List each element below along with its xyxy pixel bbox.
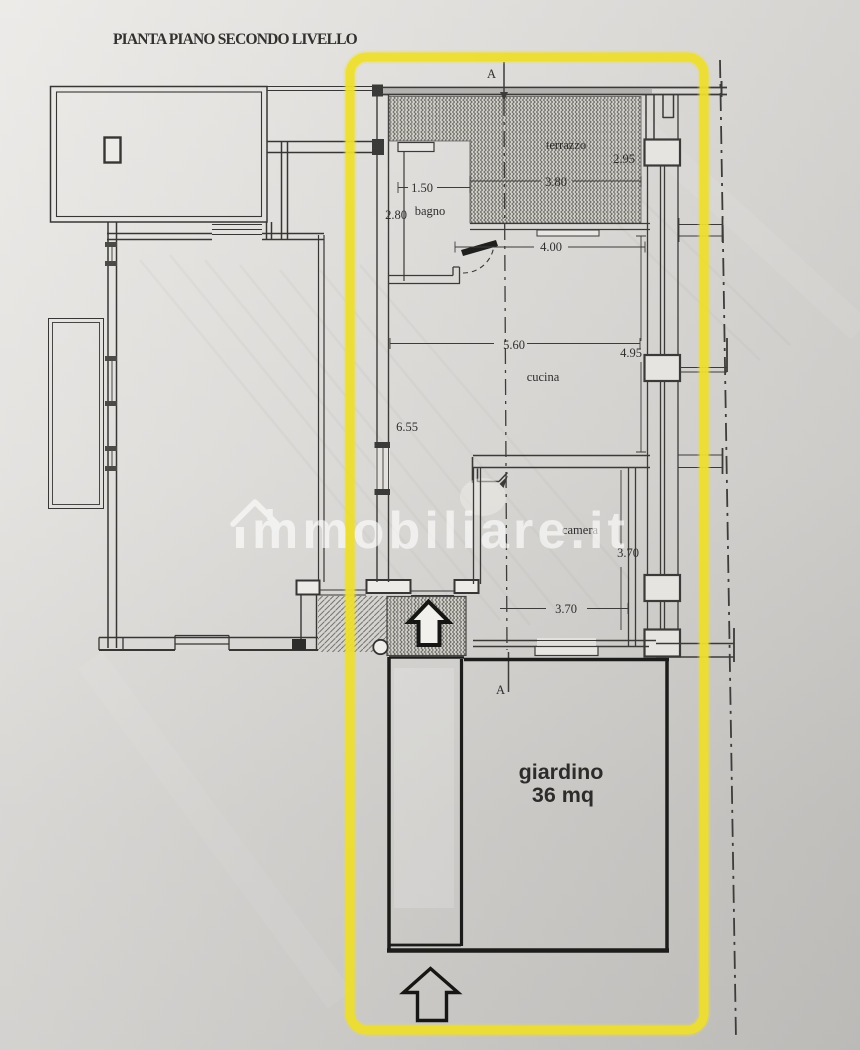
svg-text:terrazzo: terrazzo (546, 138, 586, 152)
svg-text:36 mq: 36 mq (532, 783, 594, 807)
svg-text:3.80: 3.80 (545, 175, 567, 189)
svg-text:1.50: 1.50 (411, 181, 433, 195)
svg-text:giardino: giardino (519, 760, 604, 784)
svg-text:5.60: 5.60 (503, 338, 525, 352)
svg-text:4.00: 4.00 (540, 240, 562, 254)
svg-text:6.55: 6.55 (396, 420, 418, 434)
svg-text:mmobiliare.it: mmobiliare.it (252, 502, 629, 560)
svg-text:bagno: bagno (415, 204, 446, 218)
svg-text:PIANTA PIANO SECONDO LIVELLO: PIANTA PIANO SECONDO LIVELLO (113, 31, 358, 48)
svg-text:3.70: 3.70 (555, 602, 577, 616)
svg-text:A: A (487, 67, 496, 81)
svg-text:4.95: 4.95 (620, 346, 642, 360)
svg-text:A: A (496, 683, 505, 697)
svg-text:cucina: cucina (527, 370, 560, 384)
svg-text:2.80: 2.80 (385, 208, 407, 222)
svg-text:2.95: 2.95 (613, 152, 635, 166)
